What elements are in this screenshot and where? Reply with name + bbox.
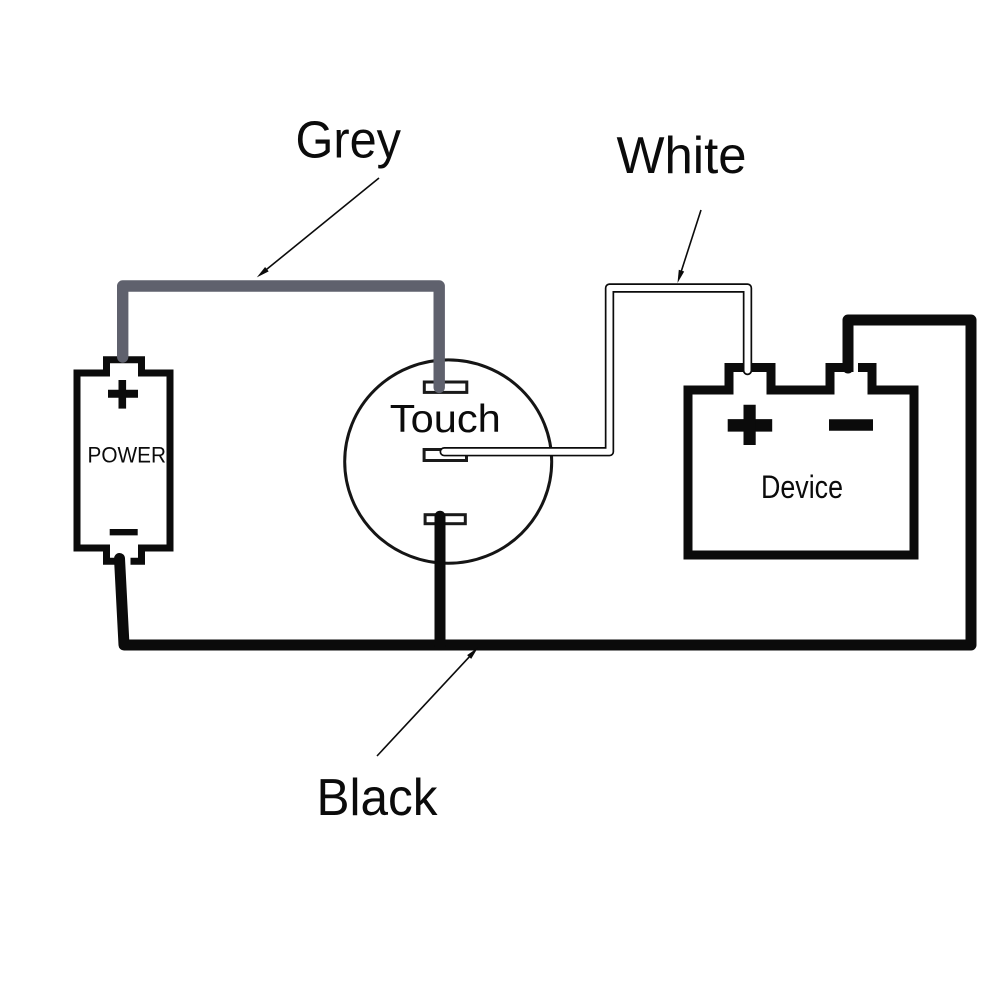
- svg-text:White: White: [617, 127, 747, 185]
- svg-text:POWER: POWER: [88, 443, 167, 468]
- svg-text:Device: Device: [761, 469, 843, 505]
- svg-text:Grey: Grey: [296, 112, 402, 170]
- svg-text:Black: Black: [317, 769, 439, 827]
- svg-text:Touch: Touch: [390, 398, 501, 441]
